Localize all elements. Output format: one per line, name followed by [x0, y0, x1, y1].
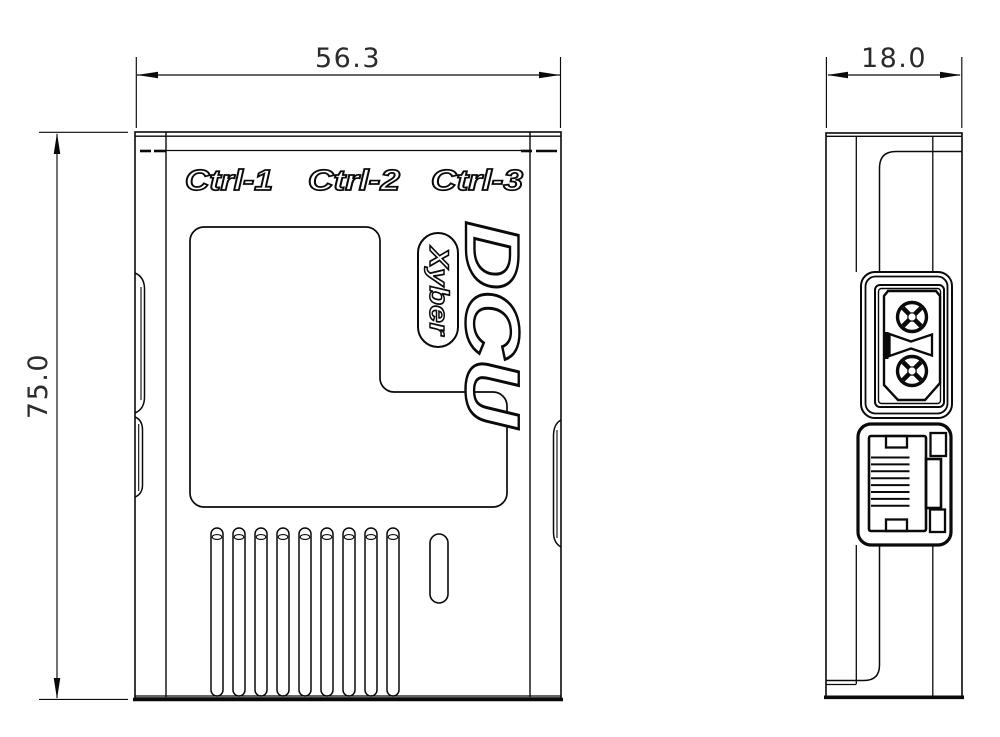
- rj45-shield-tab-top: [931, 433, 947, 456]
- rj45-key-bottom: [886, 520, 907, 532]
- dimension-depth: 18.0: [826, 43, 961, 128]
- dimension-width: 56.3: [136, 43, 560, 128]
- front-left-clip-upper: [135, 273, 145, 413]
- rj45-latch-slot: [926, 459, 941, 508]
- xt30-pin-negative: [898, 357, 927, 386]
- dimension-height: 75.0: [23, 132, 128, 699]
- vent-slot: [277, 528, 289, 696]
- arrowhead-left: [137, 72, 158, 79]
- oblong-slot: [430, 534, 448, 603]
- vent-slot: [211, 528, 223, 696]
- rj45-shield-tab-bottom: [930, 510, 945, 533]
- label-ctrl-3: Ctrl-3: [431, 165, 523, 197]
- brand-logo-xyber: Xyber: [424, 245, 454, 337]
- dimension-depth-value: 18.0: [861, 43, 927, 74]
- vent-slot: [387, 528, 399, 696]
- technical-drawing-page: Ctrl-1 Ctrl-2 Ctrl-3 DCU Xyber: [0, 0, 1000, 737]
- arrowhead-left: [827, 72, 848, 79]
- arrowhead-top: [54, 133, 61, 154]
- vent-slot: [365, 528, 377, 696]
- brand-badge: Xyber: [418, 233, 458, 347]
- dimension-height-value: 75.0: [23, 353, 54, 419]
- rj45-opening: [869, 436, 926, 531]
- vent-slots: [211, 528, 399, 696]
- side-body-outline: [826, 133, 962, 698]
- product-logo-dcu: DCU: [449, 221, 534, 430]
- xt30-power-connector: [861, 272, 952, 418]
- xt30-pin-positive: [898, 303, 927, 332]
- vent-slot: [343, 528, 355, 696]
- dimension-width-value: 56.3: [315, 43, 381, 74]
- arrowhead-right: [940, 72, 961, 79]
- label-ctrl-1: Ctrl-1: [185, 165, 273, 197]
- side-view: [824, 133, 964, 698]
- vent-slot: [321, 528, 333, 696]
- vent-slot: [255, 528, 267, 696]
- rj45-contact-pins: [871, 458, 910, 506]
- drawing-svg: Ctrl-1 Ctrl-2 Ctrl-3 DCU Xyber: [0, 0, 1000, 737]
- rj45-ethernet-jack: [858, 424, 951, 545]
- front-port-labels: Ctrl-1 Ctrl-2 Ctrl-3: [185, 165, 523, 197]
- front-left-clip-lower: [135, 417, 143, 497]
- front-right-clip: [554, 420, 562, 547]
- vent-slot: [299, 528, 311, 696]
- rj45-key-top: [886, 436, 907, 448]
- label-ctrl-2: Ctrl-2: [308, 165, 400, 197]
- vent-slot: [233, 528, 245, 696]
- arrowhead-right: [539, 72, 560, 79]
- front-view: Ctrl-1 Ctrl-2 Ctrl-3 DCU Xyber: [133, 132, 563, 700]
- arrowhead-bottom: [54, 678, 61, 699]
- xt30-key-mark: [883, 332, 932, 359]
